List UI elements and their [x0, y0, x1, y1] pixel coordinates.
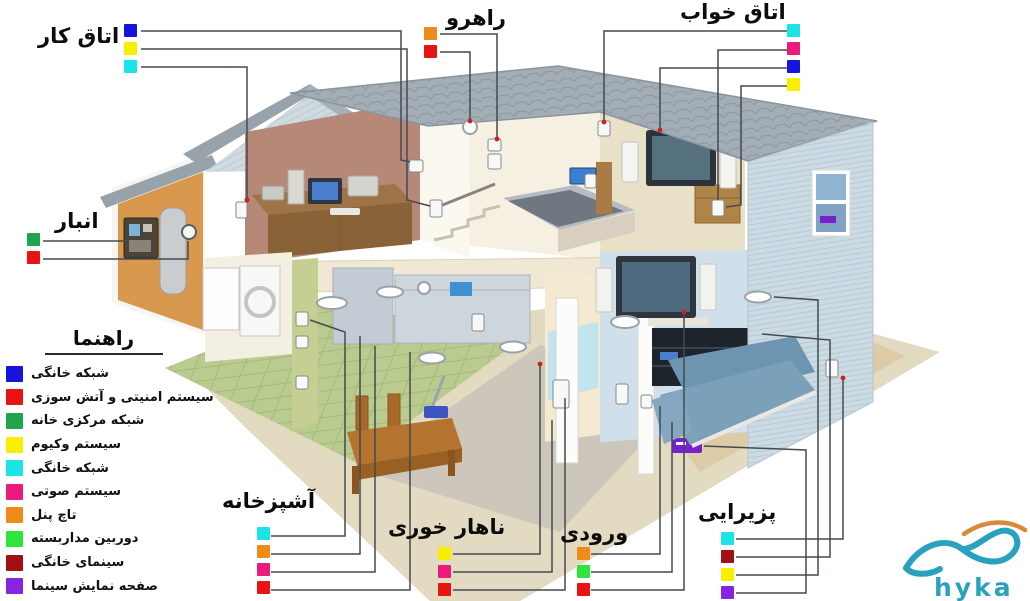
legend-label: سینمای خانگی — [31, 555, 124, 570]
room-label-text: پزیرایی — [698, 500, 776, 524]
red-connector-square — [27, 251, 40, 264]
connector-squares — [257, 527, 270, 599]
green-connector-square — [27, 233, 40, 246]
room-label-text: اتاق خواب — [680, 0, 786, 24]
brightgreen-legend-swatch — [6, 531, 23, 547]
legend-item: صفحه نمایش سینما — [6, 574, 201, 598]
hyka-logo: hyka — [906, 523, 1025, 601]
legend-item: شبکه مرکزی خانه — [6, 409, 201, 433]
legend-label: تاچ پنل — [31, 508, 76, 523]
diagram-canvas: hyka اتاق کار راهرو اتاق خواب انبار آشپز… — [0, 0, 1030, 601]
red-legend-swatch — [6, 389, 23, 405]
room-label-text: راهرو — [446, 6, 506, 30]
room-label-text: ورودی — [560, 521, 628, 545]
legend-item: سیستم وکیوم — [6, 433, 201, 457]
yellow-legend-swatch — [6, 437, 23, 453]
room-label-text: اتاق کار — [38, 24, 119, 48]
legend-items: شبکه خانگیسیستم امنیتی و آتش سوزیشبکه مر… — [6, 362, 201, 598]
magenta-connector-square — [257, 563, 270, 576]
room-label-text: آشپزخانه — [222, 489, 315, 513]
blue-connector-square — [787, 60, 800, 73]
green-legend-swatch — [6, 413, 23, 429]
darkred-connector-square — [721, 550, 734, 563]
legend-label: سیستم امنیتی و آتش سوزی — [31, 390, 214, 405]
room-label-text: انبار — [55, 209, 99, 233]
legend-label: شبکه خانگی — [31, 366, 109, 381]
legend-label: دوربین مداربسته — [31, 531, 138, 546]
connector-squares — [27, 233, 40, 269]
connector-squares — [577, 547, 590, 601]
cyan-connector-square — [257, 527, 270, 540]
cyan-legend-swatch — [6, 460, 23, 476]
logo-text: hyka — [934, 573, 1014, 601]
legend: راهنما شبکه خانگیسیستم امنیتی و آتش سوزی… — [6, 326, 201, 598]
magenta-legend-swatch — [6, 484, 23, 500]
legend-label: سیستم صوتی — [31, 484, 121, 499]
connector-squares — [424, 27, 437, 63]
room-label-text: ناهار خوری — [388, 515, 505, 539]
yellow-connector-square — [787, 78, 800, 91]
connector-squares — [438, 547, 451, 601]
orange-connector-square — [577, 547, 590, 560]
legend-label: شبکه مرکزی خانه — [31, 413, 144, 428]
brightgreen-connector-square — [577, 565, 590, 578]
cyan-connector-square — [721, 532, 734, 545]
cyan-connector-square — [787, 24, 800, 37]
legend-item: تاچ پنل — [6, 504, 201, 528]
yellow-connector-square — [124, 42, 137, 55]
magenta-connector-square — [438, 565, 451, 578]
red-connector-square — [257, 581, 270, 594]
yellow-connector-square — [721, 568, 734, 581]
legend-title: راهنما — [45, 326, 163, 355]
legend-item: سینمای خانگی — [6, 551, 201, 575]
legend-label: سیستم وکیوم — [31, 437, 121, 452]
blue-legend-swatch — [6, 366, 23, 382]
connector-squares — [787, 24, 800, 96]
orange-legend-swatch — [6, 507, 23, 523]
legend-item: دوربین مداربسته — [6, 527, 201, 551]
connector-squares — [124, 24, 137, 78]
red-connector-square — [577, 583, 590, 596]
red-connector-square — [424, 45, 437, 58]
purple-legend-swatch — [6, 578, 23, 594]
red-connector-square — [438, 583, 451, 596]
connector-squares — [721, 532, 734, 601]
legend-item: شبکه خانگی — [6, 456, 201, 480]
orange-connector-square — [257, 545, 270, 558]
legend-label: صفحه نمایش سینما — [31, 579, 158, 594]
legend-item: سیستم صوتی — [6, 480, 201, 504]
yellow-connector-square — [438, 547, 451, 560]
purple-connector-square — [721, 586, 734, 599]
cyan-connector-square — [124, 60, 137, 73]
orange-connector-square — [424, 27, 437, 40]
legend-item: شبکه خانگی — [6, 362, 201, 386]
blue-connector-square — [124, 24, 137, 37]
darkred-legend-swatch — [6, 555, 23, 571]
legend-item: سیستم امنیتی و آتش سوزی — [6, 386, 201, 410]
magenta-connector-square — [787, 42, 800, 55]
legend-label: شبکه خانگی — [31, 461, 109, 476]
